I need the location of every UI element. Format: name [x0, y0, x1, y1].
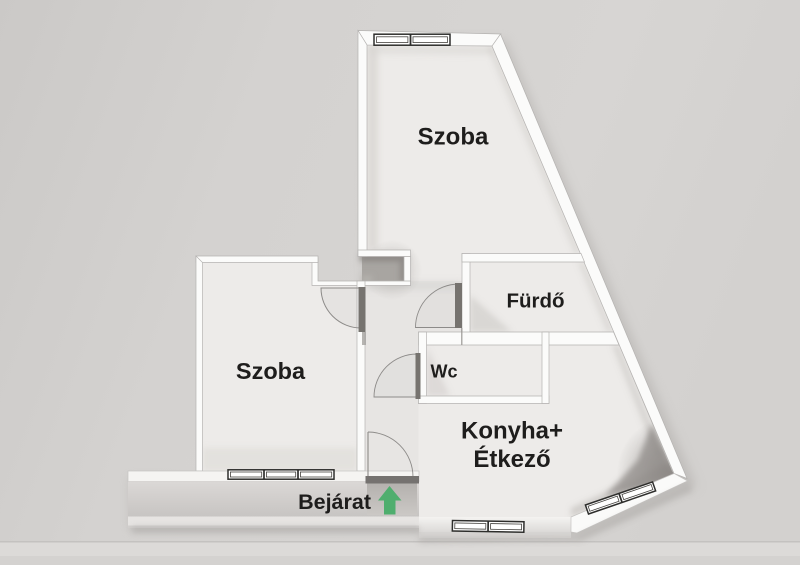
svg-text:Étkező: Étkező	[473, 445, 550, 473]
svg-text:Szoba: Szoba	[418, 124, 489, 151]
svg-text:Wc: Wc	[431, 361, 458, 381]
svg-text:Fürdő: Fürdő	[506, 290, 564, 313]
svg-text:Bejárat: Bejárat	[298, 490, 371, 514]
svg-text:Szoba: Szoba	[236, 358, 306, 384]
svg-text:Konyha+: Konyha+	[461, 418, 563, 445]
